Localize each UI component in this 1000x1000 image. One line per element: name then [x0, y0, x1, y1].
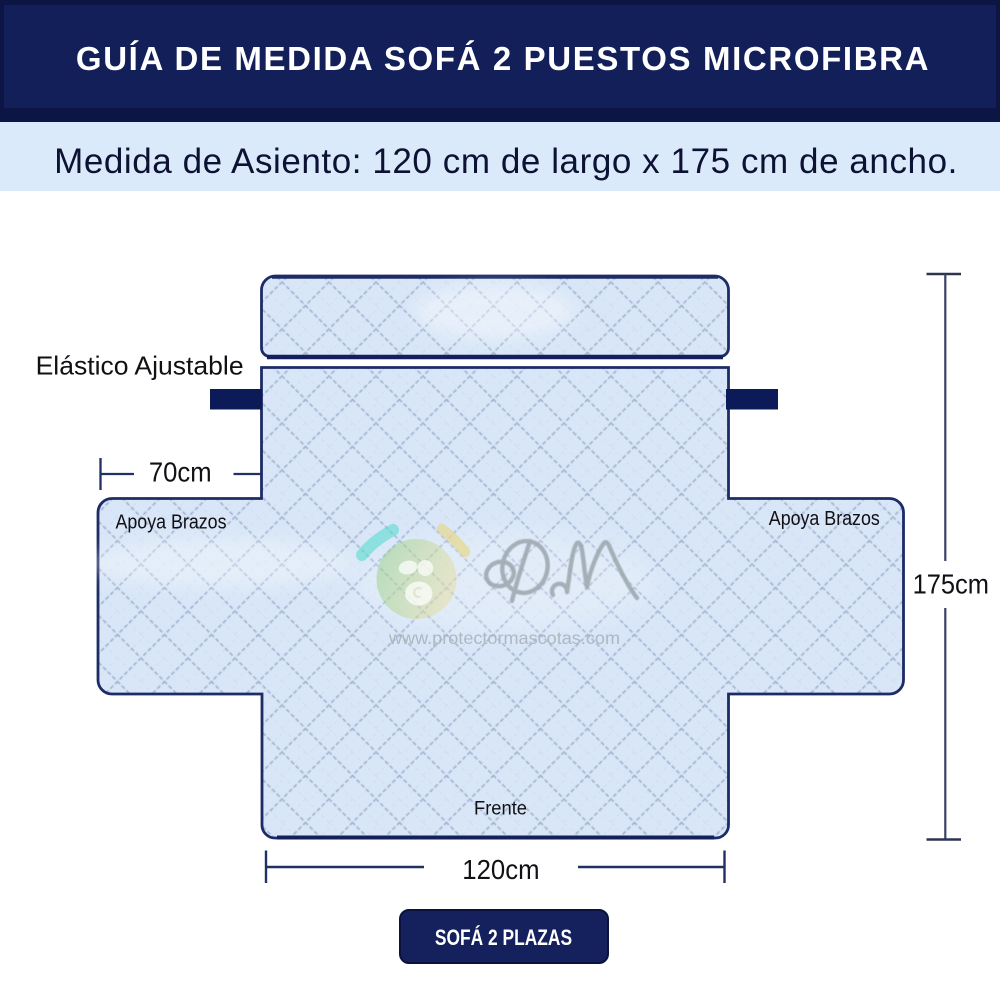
svg-text:70cm: 70cm — [149, 457, 212, 488]
svg-text:www.protectormascotas.com: www.protectormascotas.com — [388, 628, 620, 648]
svg-text:120cm: 120cm — [462, 854, 539, 885]
svg-text:Apoya Brazos: Apoya Brazos — [116, 512, 227, 534]
svg-text:175cm: 175cm — [913, 569, 989, 600]
svg-text:Elástico Ajustable: Elástico Ajustable — [36, 350, 244, 380]
svg-text:Frente: Frente — [474, 799, 527, 820]
svg-text:Apoya Brazos: Apoya Brazos — [769, 508, 880, 530]
